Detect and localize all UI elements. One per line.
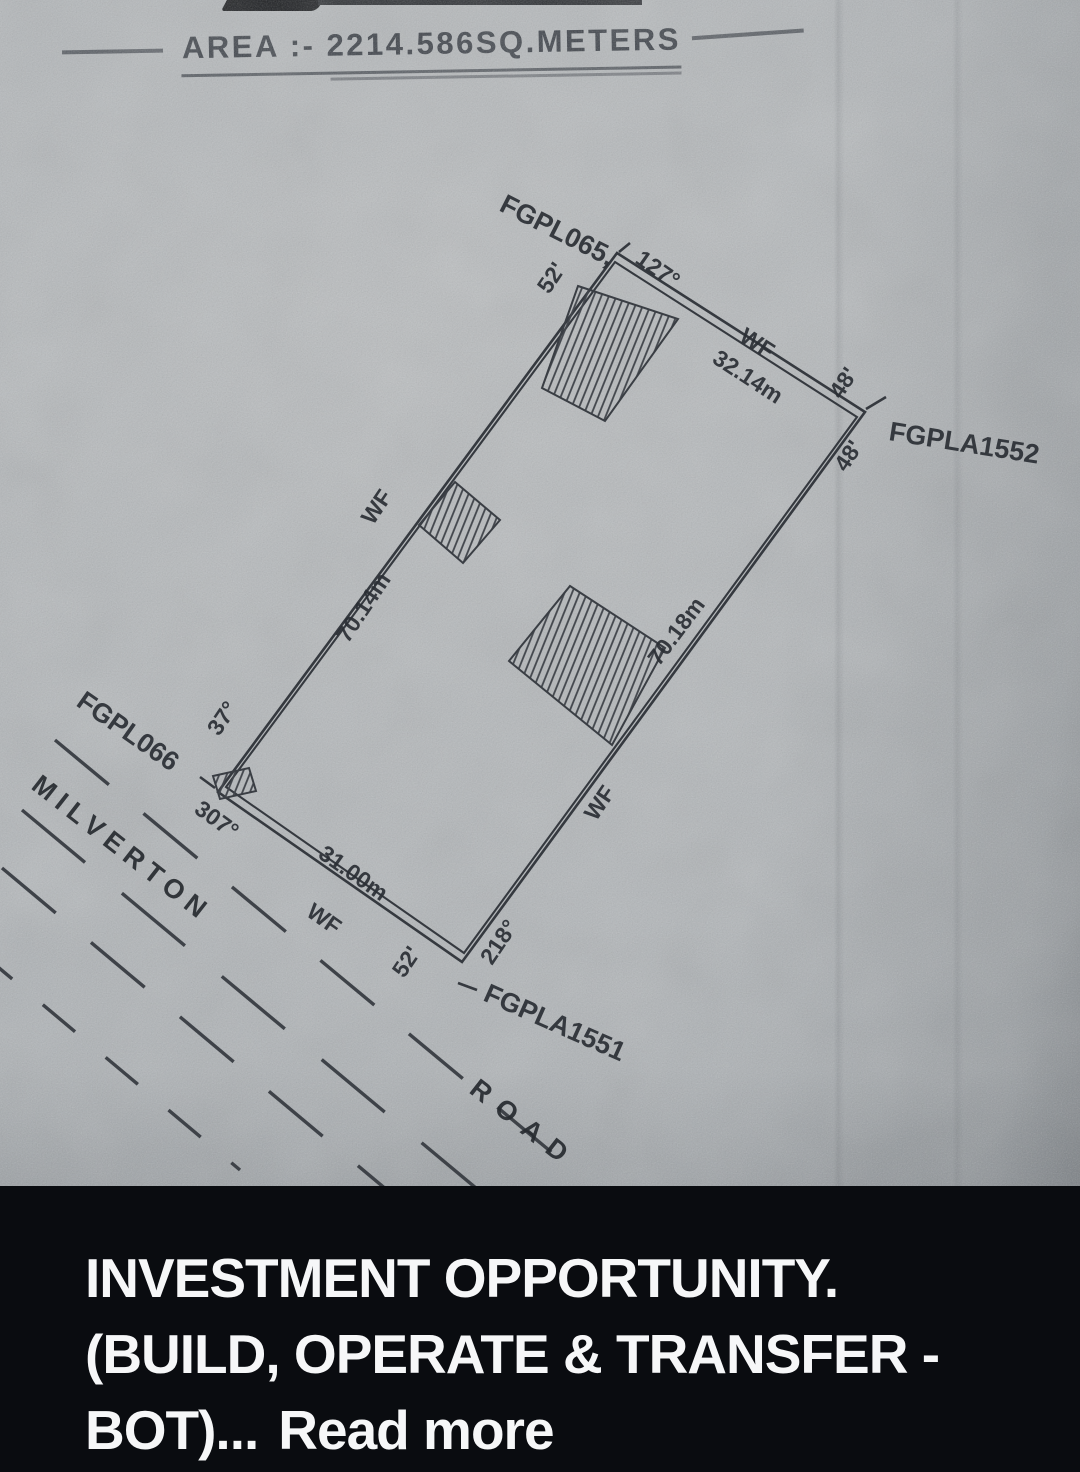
survey-plan-drawing: FGPL065, 127° 52' WF 32.14m 48' FGPLA155… <box>0 0 1080 1186</box>
caption-line-3: BOT)...Read more <box>85 1398 554 1462</box>
caption-line-1: INVESTMENT OPPORTUNITY. <box>85 1246 838 1310</box>
caption-line-2: (BUILD, OPERATE & TRANSFER - <box>85 1322 939 1386</box>
post-screenshot: AREA :- 2214.586SQ.METERS <box>0 0 1080 1472</box>
caption-line-3-text: BOT)... <box>85 1399 258 1461</box>
read-more-link[interactable]: Read more <box>278 1399 553 1461</box>
caption-bar: INVESTMENT OPPORTUNITY. (BUILD, OPERATE … <box>0 1186 1080 1472</box>
survey-plan-photo[interactable]: AREA :- 2214.586SQ.METERS <box>0 0 1080 1186</box>
